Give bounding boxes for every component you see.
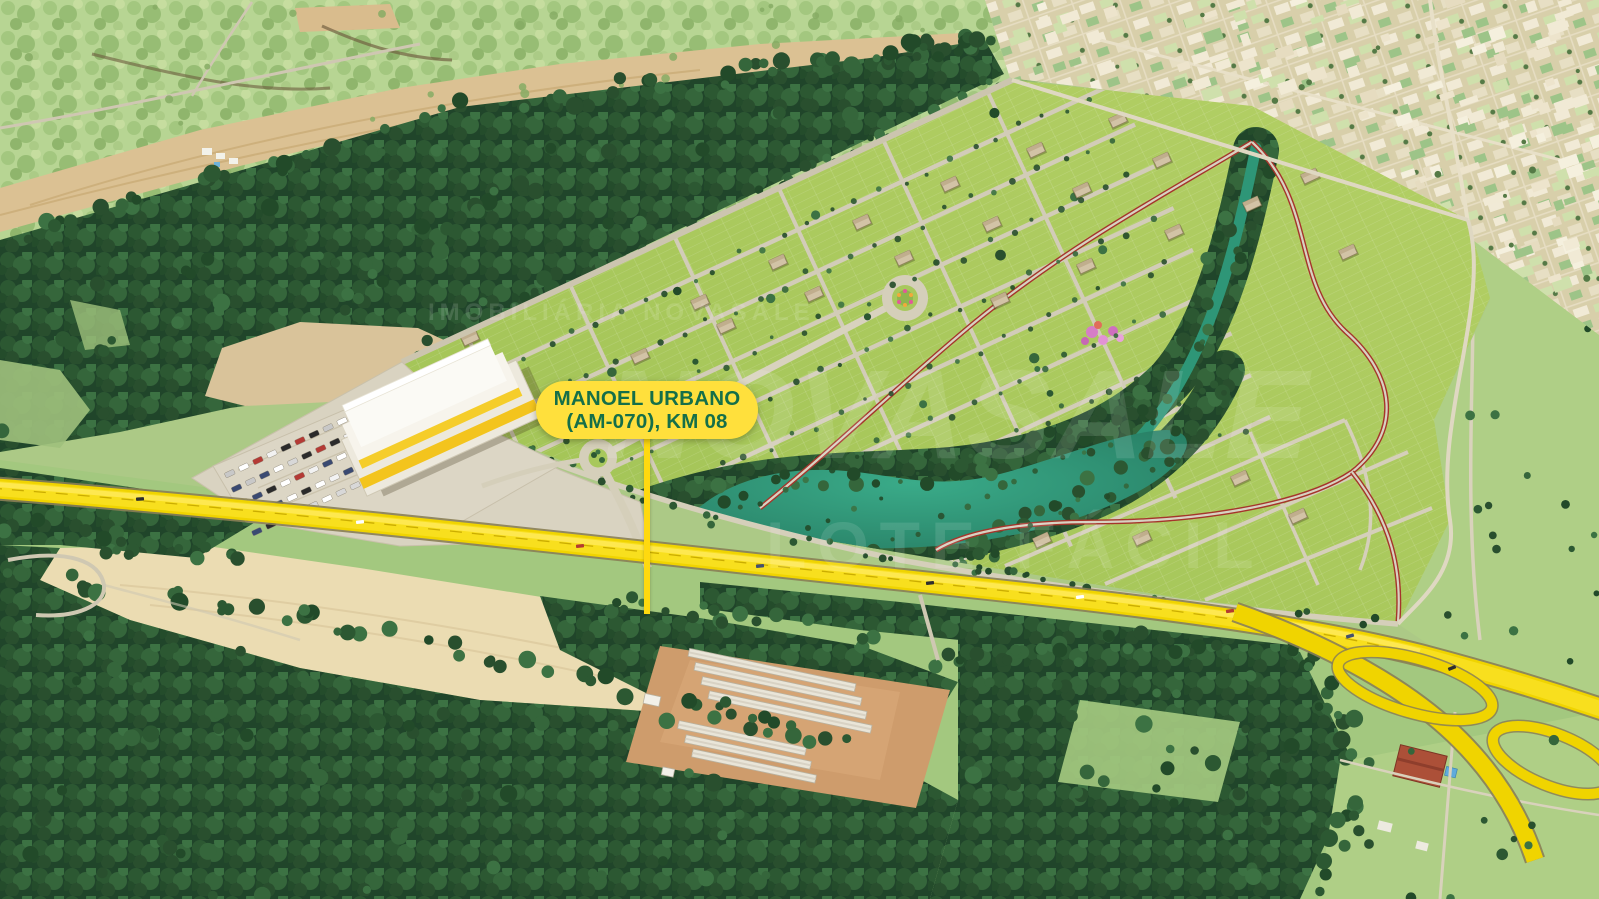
- callout-pointer-line: [644, 430, 650, 614]
- callout-line-1: MANOEL URBANO: [554, 387, 741, 410]
- callout-line-2: (AM-070), KM 08: [566, 410, 727, 433]
- entrance-roundabout: [579, 439, 617, 477]
- location-callout: MANOEL URBANO (AM-070), KM 08: [536, 381, 758, 439]
- aerial-render-scene: IMOBILIÁRIA NOVASALE NOVASALE LOTE FÁCIL…: [0, 0, 1599, 899]
- central-roundabout: [882, 275, 928, 321]
- aerial-render-svg: [0, 0, 1599, 899]
